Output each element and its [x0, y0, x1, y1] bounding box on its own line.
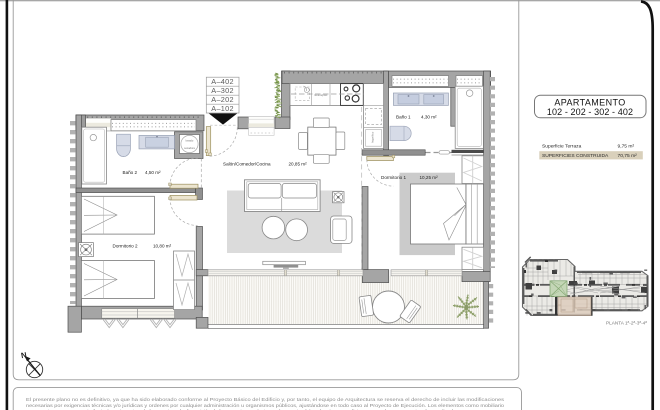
svg-text:lavado: lavado	[186, 139, 194, 143]
svg-text:PLANTA 1ª-2ª-3ª-4ª: PLANTA 1ª-2ª-3ª-4ª	[606, 321, 647, 326]
svg-text:Baño 1: Baño 1	[396, 114, 411, 119]
svg-text:A–302: A–302	[211, 86, 234, 95]
svg-text:A–202: A–202	[211, 95, 234, 104]
svg-text:APARTAMENTO: APARTAMENTO	[554, 98, 625, 108]
svg-text:Baño 2: Baño 2	[123, 170, 138, 175]
svg-text:Dormitorio 1: Dormitorio 1	[381, 175, 406, 180]
svg-text:70,75 m²: 70,75 m²	[618, 153, 638, 159]
svg-text:4,30 m²: 4,30 m²	[421, 114, 437, 119]
svg-text:N: N	[20, 350, 27, 360]
svg-text:A–402: A–402	[211, 77, 234, 86]
svg-text:9,75 m²: 9,75 m²	[618, 144, 635, 150]
svg-text:20,85 m²: 20,85 m²	[289, 162, 308, 167]
svg-text:10,25 m²: 10,25 m²	[420, 175, 439, 180]
svg-text:10,80 m²: 10,80 m²	[153, 244, 172, 249]
svg-text:necesarias por exigencias técn: necesarias por exigencias técnicas y/o j…	[26, 403, 504, 409]
svg-text:A–102: A–102	[211, 104, 234, 113]
svg-text:Salón/Comedor/Cocina: Salón/Comedor/Cocina	[223, 162, 271, 167]
svg-text:4,50 m²: 4,50 m²	[145, 170, 161, 175]
svg-text:secadora: secadora	[184, 146, 195, 150]
svg-text:102 - 202 - 302 - 402: 102 - 202 - 302 - 402	[547, 107, 633, 117]
svg-text:frigorífico: frigorífico	[371, 131, 375, 143]
svg-text:Superficie Terraza: Superficie Terraza	[542, 144, 582, 150]
svg-text:El presente plano no es defini: El presente plano no es definitivo, ya q…	[26, 397, 505, 403]
svg-text:Dormitorio 2: Dormitorio 2	[113, 244, 138, 249]
svg-text:SUPERFICIES CONSTRUIDA: SUPERFICIES CONSTRUIDA	[542, 153, 609, 159]
